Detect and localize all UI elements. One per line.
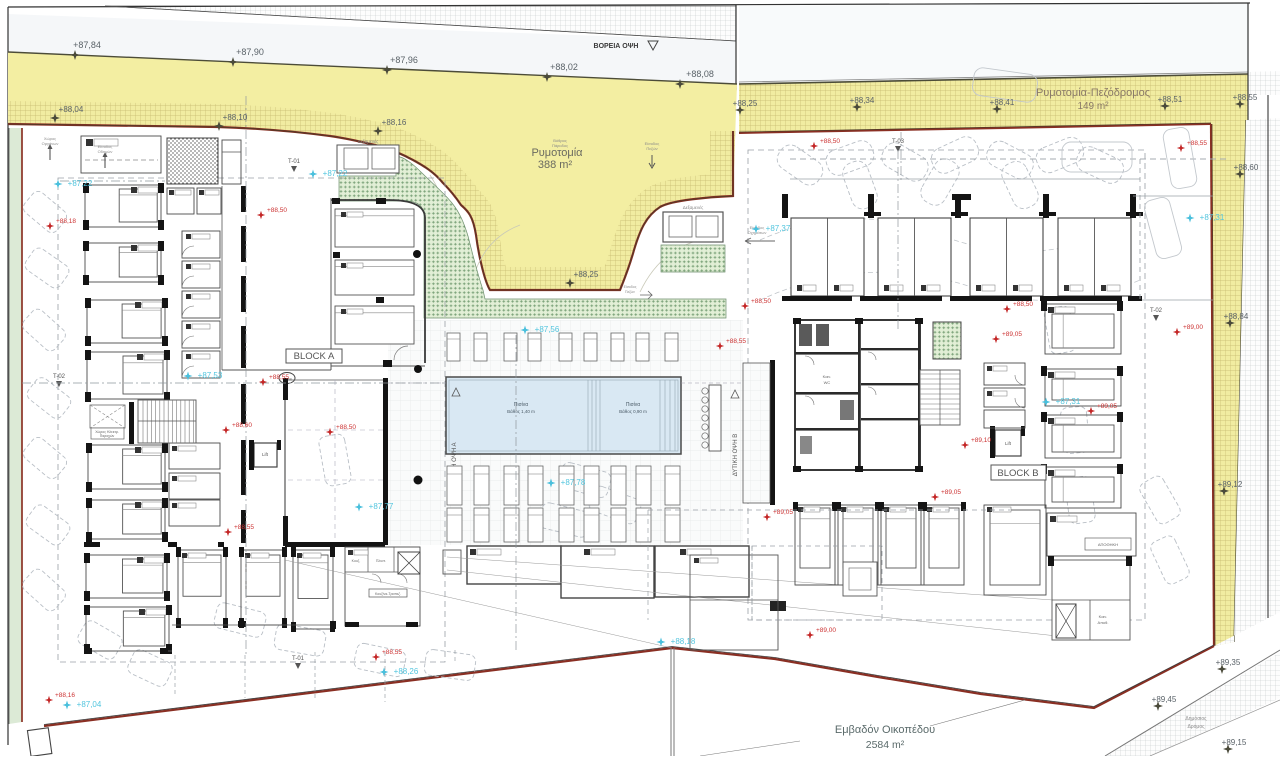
svg-text:+88,02: +88,02 — [550, 62, 578, 72]
svg-text:Πεζών: Πεζών — [646, 146, 657, 151]
svg-text:Δρόμος: Δρόμος — [1187, 723, 1205, 730]
svg-text:Κουζ.: Κουζ. — [352, 559, 361, 563]
svg-text:+88,50: +88,50 — [820, 138, 840, 145]
svg-text:+88,55: +88,55 — [382, 649, 402, 656]
svg-text:+89,45: +89,45 — [1152, 695, 1177, 704]
svg-text:T-03: T-03 — [892, 139, 905, 145]
svg-text:+87,84: +87,84 — [73, 40, 101, 50]
svg-text:+88,60: +88,60 — [1234, 163, 1259, 172]
svg-text:+87,31: +87,31 — [1056, 397, 1081, 406]
svg-text:+88,55: +88,55 — [269, 374, 289, 381]
svg-text:+87,77: +87,77 — [369, 502, 394, 511]
svg-text:+88,25: +88,25 — [574, 270, 599, 279]
svg-text:Βάθος 0,90 m: Βάθος 0,90 m — [619, 408, 647, 414]
svg-text:+87,78: +87,78 — [561, 478, 586, 487]
svg-text:Lift: Lift — [262, 452, 269, 457]
svg-text:+89,00: +89,00 — [816, 627, 836, 634]
svg-text:+87,04: +87,04 — [77, 700, 102, 709]
svg-text:T-02: T-02 — [53, 374, 66, 380]
svg-text:2584 m²: 2584 m² — [866, 739, 905, 751]
svg-text:Δεξαμενές: Δεξαμενές — [358, 138, 379, 144]
svg-text:+88,10: +88,10 — [223, 113, 248, 122]
svg-text:Πλυντ.: Πλυντ. — [376, 559, 386, 563]
svg-text:BLOCK B: BLOCK B — [997, 468, 1038, 479]
svg-text:Κοιν.: Κοιν. — [1099, 614, 1108, 619]
svg-text:+89,35: +89,35 — [1216, 658, 1241, 667]
svg-text:+88,50: +88,50 — [1013, 301, 1033, 308]
svg-text:+88,25: +88,25 — [733, 99, 758, 108]
svg-text:+89,12: +89,12 — [1218, 480, 1243, 489]
svg-text:+89,15: +89,15 — [1222, 738, 1247, 747]
svg-text:+87,37: +87,37 — [766, 224, 791, 233]
svg-text:+89,05: +89,05 — [941, 489, 961, 496]
svg-text:+88,16: +88,16 — [55, 692, 75, 699]
svg-text:+89,05: +89,05 — [1097, 403, 1117, 410]
svg-text:Κοιν.: Κοιν. — [823, 374, 832, 379]
svg-text:Βάθος 1,40 m: Βάθος 1,40 m — [507, 408, 535, 414]
svg-text:T-01: T-01 — [288, 159, 301, 165]
svg-text:+88,55: +88,55 — [1187, 140, 1207, 147]
svg-text:+88,18: +88,18 — [671, 637, 696, 646]
svg-text:WC: WC — [824, 380, 831, 385]
svg-text:+87,22: +87,22 — [68, 179, 93, 188]
svg-text:+87,56: +87,56 — [535, 325, 560, 334]
svg-text:+88,55: +88,55 — [1233, 93, 1258, 102]
svg-text:Lift: Lift — [1005, 441, 1012, 446]
svg-text:388 m²: 388 m² — [538, 159, 573, 171]
svg-text:+88,84: +88,84 — [1224, 312, 1249, 321]
svg-text:Παροχών: Παροχών — [100, 434, 115, 438]
svg-text:+88,41: +88,41 — [990, 98, 1015, 107]
svg-text:+88,60: +88,60 — [232, 422, 252, 429]
svg-text:Δημόσιος: Δημόσιος — [1185, 715, 1207, 722]
svg-text:Ρυμοτομία-Πεζόδρομος: Ρυμοτομία-Πεζόδρομος — [1036, 87, 1150, 99]
svg-text:Οδηγών: Οδηγών — [98, 149, 113, 154]
svg-text:+89,00: +89,00 — [1183, 324, 1203, 331]
svg-text:+88,50: +88,50 — [267, 207, 287, 214]
svg-text:T-02: T-02 — [1150, 308, 1163, 314]
svg-text:Οργάνων: Οργάνων — [42, 141, 59, 146]
svg-text:Πεζών: Πεζών — [625, 290, 635, 294]
svg-text:+87,53: +87,53 — [198, 371, 223, 380]
svg-text:Εμβαδόν Οικοπέδου: Εμβαδόν Οικοπέδου — [835, 724, 935, 736]
svg-text:+88,50: +88,50 — [336, 424, 356, 431]
svg-text:+88,34: +88,34 — [850, 96, 875, 105]
svg-text:+88,51: +88,51 — [1158, 95, 1183, 104]
svg-text:Κουζίνα-Τραπεζ.: Κουζίνα-Τραπεζ. — [375, 592, 401, 596]
svg-text:+88,08: +88,08 — [686, 69, 714, 79]
svg-text:Δεξαμενές: Δεξαμενές — [683, 204, 704, 210]
svg-text:149 m²: 149 m² — [1077, 101, 1109, 112]
svg-text:+87,31: +87,31 — [1200, 213, 1225, 222]
svg-text:Είσοδος: Είσοδος — [624, 285, 637, 289]
svg-text:ΔΥΤΙΚΗ ΟΨΗ Β: ΔΥΤΙΚΗ ΟΨΗ Β — [733, 434, 739, 477]
svg-text:Ρυμοτομία: Ρυμοτομία — [531, 147, 583, 159]
svg-text:Πισίνα: Πισίνα — [626, 402, 640, 408]
svg-text:+87,22: +87,22 — [323, 169, 348, 178]
svg-text:Αποθ.: Αποθ. — [1098, 620, 1109, 625]
svg-text:+88,55: +88,55 — [726, 338, 746, 345]
svg-text:BLOCK A: BLOCK A — [294, 351, 335, 362]
svg-text:+89,10: +89,10 — [971, 437, 991, 444]
svg-text:+89,05: +89,05 — [1002, 331, 1022, 338]
svg-text:+88,26: +88,26 — [394, 667, 419, 676]
svg-text:+87,96: +87,96 — [390, 55, 418, 65]
svg-text:+88,18: +88,18 — [56, 218, 76, 225]
svg-text:+88,55: +88,55 — [234, 524, 254, 531]
svg-text:Οχημάτων: Οχημάτων — [748, 230, 767, 235]
svg-text:ΒΟΡΕΙΑ ΟΨΗ: ΒΟΡΕΙΑ ΟΨΗ — [594, 43, 639, 50]
svg-text:T-01: T-01 — [292, 656, 305, 662]
svg-text:+88,50: +88,50 — [751, 298, 771, 305]
svg-text:ΑΠΟΘΗΚΗ: ΑΠΟΘΗΚΗ — [1098, 542, 1118, 547]
svg-text:+88,04: +88,04 — [59, 105, 84, 114]
svg-text:+89,05: +89,05 — [773, 509, 793, 516]
svg-text:+87,90: +87,90 — [236, 47, 264, 57]
svg-text:+88,16: +88,16 — [382, 118, 407, 127]
